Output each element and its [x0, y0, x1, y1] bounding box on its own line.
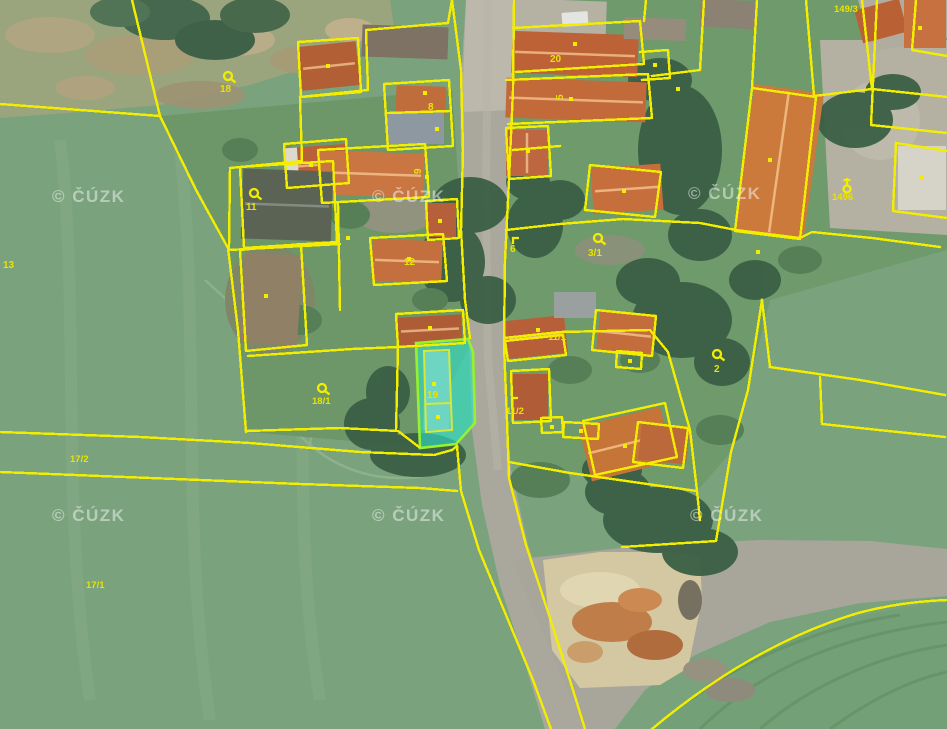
- cuzk-watermark: © ČÚZK: [688, 184, 761, 203]
- cuzk-watermark: © ČÚZK: [52, 506, 125, 525]
- cadastral-map[interactable]: 1317/217/1181118/1128920563/111/111/2214…: [0, 0, 947, 729]
- cuzk-watermark: © ČÚZK: [372, 187, 445, 206]
- parcel-label: 149/3: [834, 4, 858, 15]
- parcel-label: 1496: [832, 192, 853, 203]
- parcel-label: 11/1: [548, 332, 567, 343]
- parcel-label: 3/1: [588, 248, 602, 259]
- parcel-label: 5: [555, 94, 566, 100]
- parcel-label: 18: [220, 84, 232, 95]
- parcel-label: 11/2: [506, 406, 524, 417]
- highlighted-parcel[interactable]: [416, 339, 475, 448]
- parcel-label: 6: [510, 244, 516, 255]
- parcel-label: 20: [550, 54, 562, 65]
- parcel-label: 11: [246, 202, 257, 213]
- parcel-label: 12: [404, 257, 416, 268]
- parcel-label: 19: [427, 390, 439, 401]
- parcel-label: 9: [413, 168, 424, 174]
- dot-symbol: [432, 382, 436, 386]
- parcel-label: 13: [3, 260, 15, 271]
- cuzk-watermark: © ČÚZK: [372, 506, 445, 525]
- parcel-label: 17/1: [86, 580, 105, 591]
- parcel-label: 2: [714, 364, 720, 375]
- cuzk-watermark: © ČÚZK: [690, 506, 763, 525]
- parcel-label: 18/1: [312, 396, 331, 407]
- parcel-label: 8: [428, 102, 434, 113]
- cuzk-watermark: © ČÚZK: [52, 187, 125, 206]
- parcel-label: 17/2: [70, 454, 89, 465]
- map-viewport[interactable]: 1317/217/1181118/1128920563/111/111/2214…: [0, 0, 947, 729]
